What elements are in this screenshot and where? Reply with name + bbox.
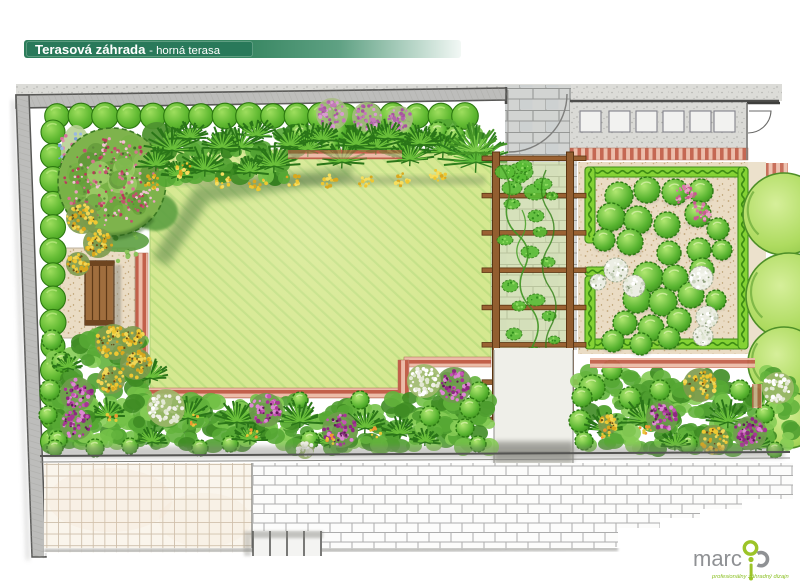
svg-text:Terasová záhrada - horná teras: Terasová záhrada - horná terasa xyxy=(35,42,221,57)
svg-text:marc: marc xyxy=(693,546,742,571)
svg-text:profesionálny záhradný dizajn: profesionálny záhradný dizajn xyxy=(711,574,789,580)
